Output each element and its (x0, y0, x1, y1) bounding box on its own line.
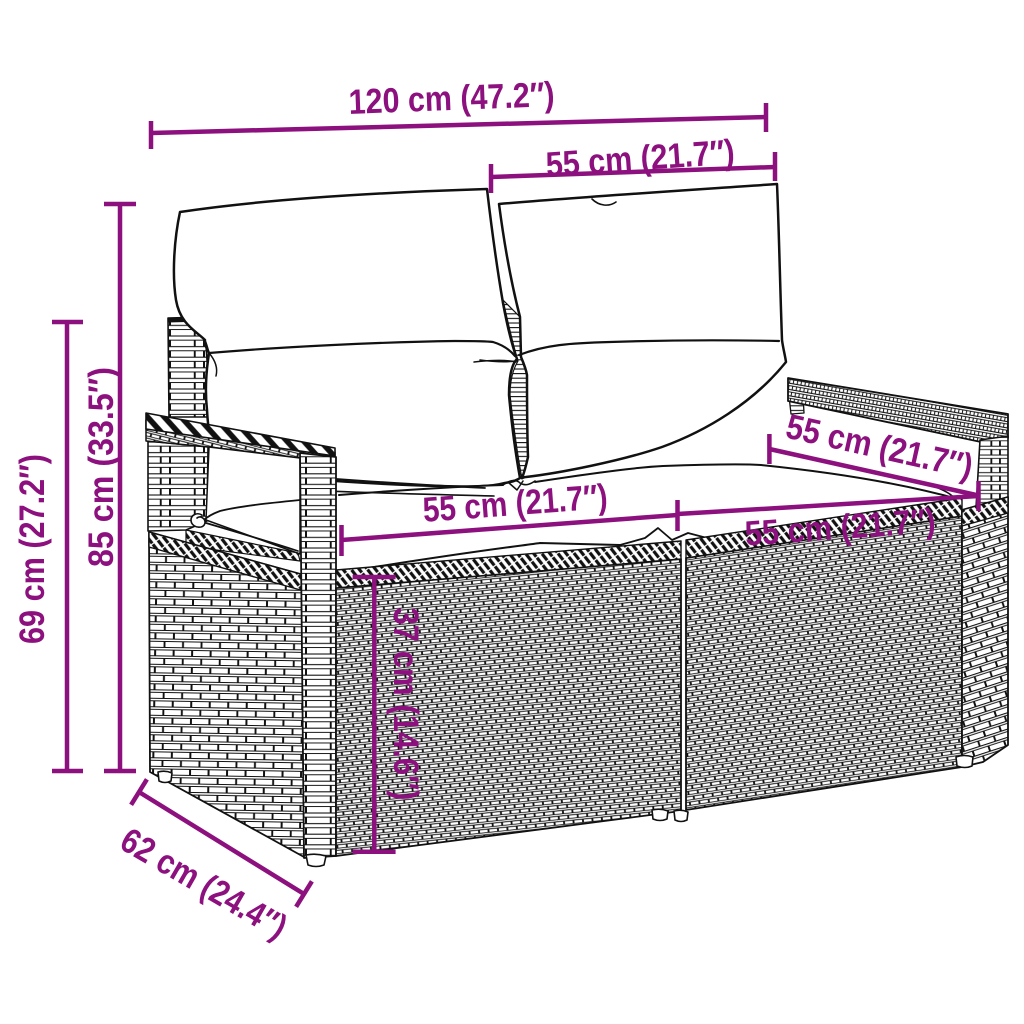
svg-text:85 cm (33.5″): 85 cm (33.5″) (82, 367, 121, 567)
svg-text:120 cm (47.2″): 120 cm (47.2″) (348, 75, 555, 122)
svg-text:69 cm (27.2″): 69 cm (27.2″) (13, 454, 52, 644)
svg-text:37 cm (14.6″): 37 cm (14.6″) (386, 608, 425, 801)
